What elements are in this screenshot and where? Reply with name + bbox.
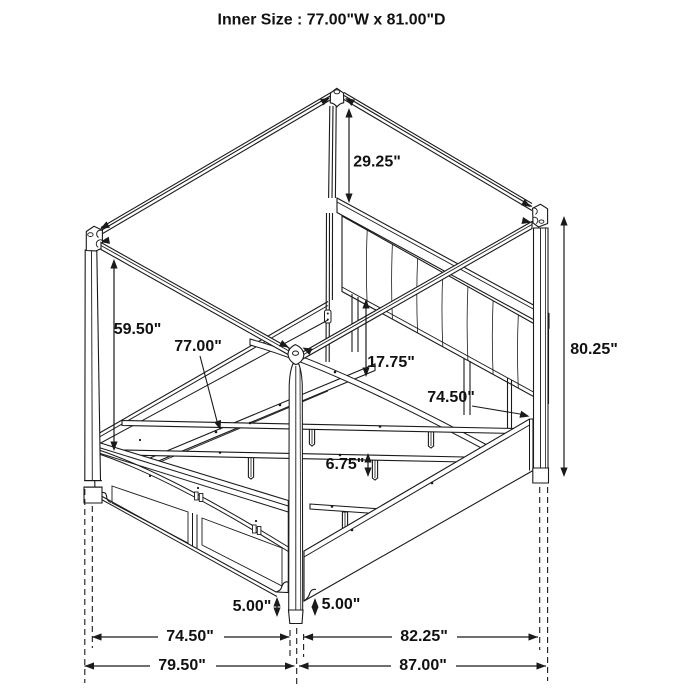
svg-text:82.25": 82.25" [400,628,448,645]
svg-text:59.50": 59.50" [114,321,162,338]
svg-text:74.50": 74.50" [427,389,475,406]
svg-text:6.75": 6.75" [326,456,365,473]
svg-text:74.50": 74.50" [166,628,214,645]
svg-text:77.00": 77.00" [174,338,222,355]
svg-text:5.00": 5.00" [233,598,272,615]
svg-text:Inner Size : 77.00"W x 81.00"D: Inner Size : 77.00"W x 81.00"D [218,12,446,29]
svg-text:79.50": 79.50" [158,657,206,674]
svg-text:29.25": 29.25" [353,154,401,171]
svg-text:80.25": 80.25" [570,341,618,358]
svg-text:17.75": 17.75" [367,354,415,371]
svg-text:5.00": 5.00" [322,596,361,613]
svg-text:87.00": 87.00" [399,657,447,674]
